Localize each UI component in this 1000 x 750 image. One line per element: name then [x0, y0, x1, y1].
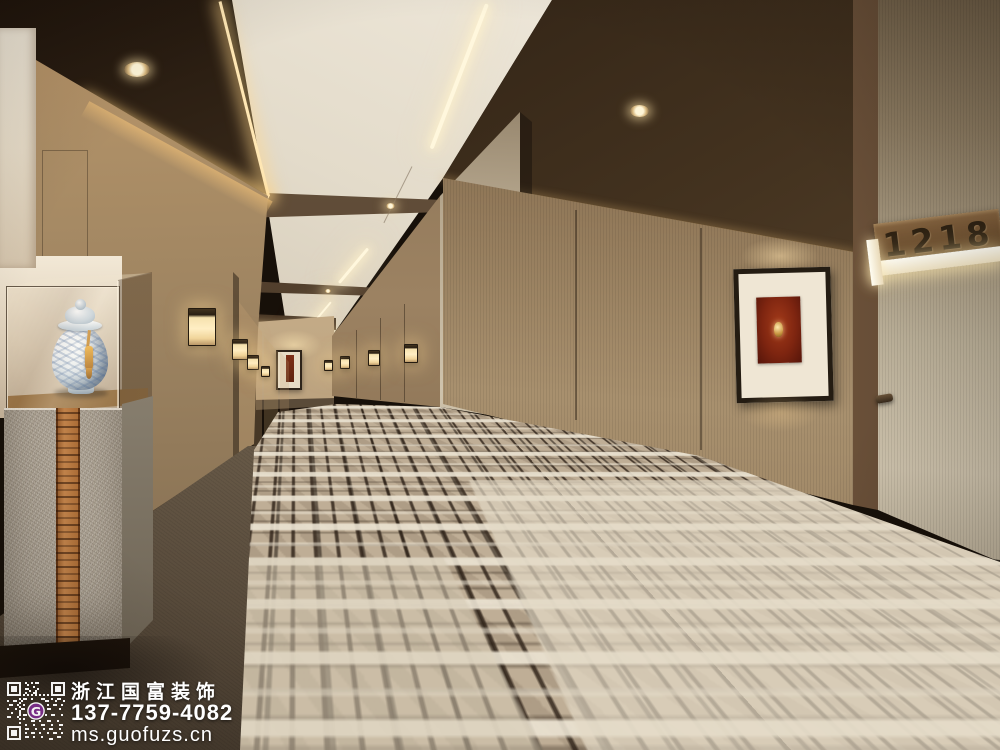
corridor-scene: 1218: [0, 0, 1000, 750]
vignette: [0, 0, 1000, 750]
qr-code: G: [7, 680, 65, 742]
website-url: ms.guofuzs.cn: [71, 724, 213, 747]
qr-logo-letter: G: [31, 705, 42, 720]
phone-number: 137-7759-4082: [71, 700, 233, 726]
